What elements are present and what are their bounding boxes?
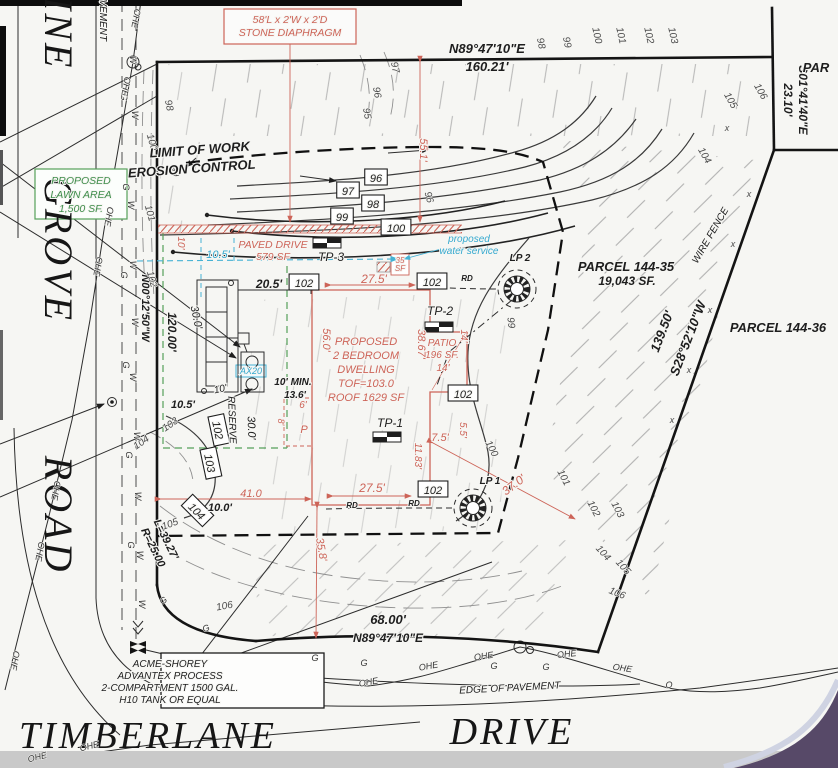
utility-label-39: x <box>707 305 713 315</box>
contour-label-1: 97 <box>337 182 360 198</box>
svg-text:PROPOSED: PROPOSED <box>51 175 111 187</box>
svg-text:RESERVE: RESERVE <box>225 396 238 444</box>
utility-label-42: x <box>724 123 730 133</box>
street-name-drive: DRIVE <box>449 711 575 753</box>
svg-text:160.21': 160.21' <box>466 59 510 74</box>
roof-drain-label: RD <box>461 274 473 283</box>
svg-text:RD: RD <box>346 501 358 510</box>
svg-text:SF: SF <box>395 264 406 273</box>
svg-text:579 SF: 579 SF <box>256 251 290 263</box>
svg-text:PARCEL 144-36: PARCEL 144-36 <box>730 320 827 335</box>
lawn-note-line-1: PROPOSED <box>51 175 111 187</box>
svg-text:PAVED DRIVE: PAVED DRIVE <box>238 239 308 251</box>
leach-pool-1-label: LP 1 <box>480 476 501 487</box>
stone-diaphragm-line <box>158 225 462 233</box>
patio-dim-2: 14' <box>458 329 469 343</box>
septic-note-line-4: H10 TANK OR EQUAL <box>119 695 221 706</box>
svg-text:x: x <box>730 239 736 249</box>
site-plan-page: Scanned engineering site plan: proposed … <box>0 0 838 768</box>
svg-text:AX20: AX20 <box>239 366 262 376</box>
utility-label-30: O <box>665 680 672 690</box>
distance-south: 68.00' <box>370 612 407 627</box>
svg-text:7.5': 7.5' <box>431 432 449 444</box>
distance-east: 23.10' <box>781 83 795 118</box>
svg-text:N89°47'10"E: N89°47'10"E <box>353 631 424 645</box>
svg-text:68.00': 68.00' <box>370 612 407 627</box>
svg-text:120.00': 120.00' <box>165 312 179 353</box>
svg-text:TOF=103.0: TOF=103.0 <box>338 378 395 390</box>
svg-text:10.5': 10.5' <box>171 399 195 411</box>
svg-text:G: G <box>490 661 497 671</box>
svg-text:LP 2: LP 2 <box>510 253 531 264</box>
utility-label-35: G <box>542 662 549 672</box>
stone-diaphragm-note-line-2: STONE DIAPHRAGM <box>239 27 342 39</box>
svg-text:10' MIN.: 10' MIN. <box>274 377 311 388</box>
septic-note-line-3: 2-COMPARTMENT 1500 GAL. <box>101 683 239 694</box>
contour-label-6: 102 <box>417 273 447 289</box>
svg-text:x: x <box>669 415 675 425</box>
contour-label-7: 102 <box>448 385 478 401</box>
test-pit-2-label: TP-2 <box>427 304 453 318</box>
leach-pool-2-label: LP 2 <box>510 253 531 264</box>
svg-text:2 BEDROOM: 2 BEDROOM <box>332 350 400 362</box>
svg-text:19,043 SF.: 19,043 SF. <box>598 274 655 288</box>
dimension-label-9: 41.0 <box>240 488 262 500</box>
dimension-label-1: 27.5' <box>360 272 387 286</box>
patio-dim-1: 14' <box>436 363 450 374</box>
svg-text:11.83': 11.83' <box>412 443 423 470</box>
dwelling-note-line-3: DWELLING <box>337 364 395 376</box>
dimension-label-22: 30.0' <box>245 416 258 441</box>
svg-text:P: P <box>300 424 308 436</box>
street-name-timberlane: TIMBERLANE <box>19 715 277 757</box>
svg-text:proposed: proposed <box>447 234 490 245</box>
walk-symbol <box>377 262 390 272</box>
dimension-label-7: 11.83' <box>412 443 423 470</box>
distance-west: 120.00' <box>165 312 179 353</box>
parcel-144-35: PARCEL 144-35 <box>578 259 675 274</box>
svg-text:PAR: PAR <box>803 60 830 75</box>
svg-text:PARCEL 144-35: PARCEL 144-35 <box>578 259 675 274</box>
utility-label-14: G <box>124 451 134 458</box>
svg-text:H10 TANK OR EQUAL: H10 TANK OR EQUAL <box>119 695 221 706</box>
svg-text:10.5': 10.5' <box>206 249 230 261</box>
svg-text:55.1': 55.1' <box>417 138 429 162</box>
site-plan-drawing: PINEGROVEROADTIMBERLANEDRIVEN89°47'10"E1… <box>0 0 838 768</box>
svg-text:OF PAVEMENT: OF PAVEMENT <box>97 0 108 42</box>
street-name-pine: PINE <box>36 0 81 70</box>
contour-label-4: 100 <box>381 219 411 235</box>
utility-label-40: x <box>686 365 692 375</box>
svg-text:TP-2: TP-2 <box>427 304 453 318</box>
svg-text:x: x <box>707 305 713 315</box>
svg-text:98: 98 <box>367 199 380 211</box>
water-service-label-line-2: water service <box>440 246 499 257</box>
dimension-label-2: 27.5' <box>358 481 385 495</box>
svg-text:DWELLING: DWELLING <box>337 364 395 376</box>
svg-text:2-COMPARTMENT 1500 GAL.: 2-COMPARTMENT 1500 GAL. <box>101 683 239 694</box>
svg-text:38.67': 38.67' <box>415 329 427 360</box>
test-pit-3-symbol <box>313 238 341 248</box>
utility-label-32: G <box>311 653 318 663</box>
svg-text:99: 99 <box>504 317 516 330</box>
svg-text:O: O <box>665 680 672 690</box>
svg-text:102: 102 <box>295 278 313 290</box>
svg-text:OHE: OHE <box>556 648 577 660</box>
utility-label-33: G <box>360 658 367 668</box>
dwelling-note-line-5: ROOF 1629 SF <box>328 392 405 404</box>
svg-text:x: x <box>724 123 730 133</box>
svg-text:97: 97 <box>342 186 355 198</box>
roof-drain-label: RD <box>408 499 420 508</box>
svg-text:x: x <box>686 365 692 375</box>
svg-text:10': 10' <box>175 236 186 250</box>
svg-text:LP 1: LP 1 <box>480 476 501 487</box>
dimension-label-6: 5.5' <box>457 422 468 439</box>
utility-label-28: OHE <box>556 648 577 660</box>
svg-text:20.5': 20.5' <box>255 277 283 291</box>
svg-text:water service: water service <box>440 246 499 257</box>
svg-text:PINE: PINE <box>36 0 81 70</box>
svg-text:14': 14' <box>458 329 469 343</box>
dimension-label-18: 10.5' <box>171 399 195 411</box>
svg-text:58'L x 2'W x 2'D: 58'L x 2'W x 2'D <box>253 14 328 26</box>
svg-text:5.5': 5.5' <box>457 422 468 439</box>
utility-label-11: G <box>121 183 131 190</box>
dwelling-note-line-4: TOF=103.0 <box>338 378 395 390</box>
utility-label-34: G <box>490 661 497 671</box>
svg-text:10.0': 10.0' <box>208 502 232 514</box>
dimension-label-17: 13.6' <box>284 390 306 401</box>
test-pit-2-symbol <box>425 322 453 332</box>
contour-label-5: 102 <box>289 274 319 290</box>
svg-text:TIMBERLANE: TIMBERLANE <box>19 715 277 757</box>
svg-text:G: G <box>311 653 318 663</box>
svg-text:14': 14' <box>436 363 450 374</box>
svg-text:PATIO: PATIO <box>428 338 457 349</box>
water-service-label-line-1: proposed <box>447 234 490 245</box>
dimension-label-15: 20.5' <box>255 277 283 291</box>
contour-label-3: 99 <box>331 208 354 224</box>
svg-text:41.0: 41.0 <box>240 488 262 500</box>
svg-text:96: 96 <box>370 173 383 185</box>
reserve-area-label: RESERVE <box>225 396 238 444</box>
svg-text:G: G <box>542 662 549 672</box>
svg-text:G: G <box>126 541 136 548</box>
svg-text:G: G <box>121 361 131 368</box>
lawn-note-line-3: 1,500 SF. <box>59 203 103 215</box>
dwelling-note-line-2: 2 BEDROOM <box>332 350 400 362</box>
parcel-area: 19,043 SF. <box>598 274 655 288</box>
edge-of-pavement-left-label: OF PAVEMENT <box>97 0 108 42</box>
svg-text:TP-1: TP-1 <box>377 416 403 430</box>
stone-diaphragm-note-line-1: 58'L x 2'W x 2'D <box>253 14 328 26</box>
svg-text:99: 99 <box>336 212 348 224</box>
svg-text:102: 102 <box>454 389 472 401</box>
test-pit-1-symbol <box>373 432 401 442</box>
dimension-label-3: 56.0' <box>320 328 332 352</box>
svg-text:102: 102 <box>424 485 442 497</box>
svg-text:STONE DIAPHRAGM: STONE DIAPHRAGM <box>239 27 342 39</box>
septic-note-line-1: ACME-SHOREY <box>132 659 209 670</box>
svg-text:PROPOSED: PROPOSED <box>335 336 397 348</box>
contour-label-2: 98 <box>362 195 385 211</box>
patio-label: PATIO <box>428 338 457 349</box>
lawn-note-line-2: LAWN AREA <box>50 189 111 201</box>
dwelling-note-line-1: PROPOSED <box>335 336 397 348</box>
svg-text:RD: RD <box>461 274 473 283</box>
svg-text:DRIVE: DRIVE <box>449 711 575 753</box>
dimension-label-11: 6' <box>299 400 308 411</box>
bearing-north: N89°47'10"E <box>449 41 525 56</box>
utility-label-15: G <box>126 541 136 548</box>
utility-label-12: G <box>119 271 129 278</box>
svg-text:G: G <box>119 271 129 278</box>
distance-north: 160.21' <box>466 59 510 74</box>
contour-label-34: 99 <box>504 317 516 330</box>
svg-text:6': 6' <box>299 400 308 411</box>
svg-text:102: 102 <box>423 277 441 289</box>
svg-text:G: G <box>121 183 131 190</box>
svg-text:27.5': 27.5' <box>360 272 387 286</box>
advantex-unit-label: AX20 <box>239 366 262 376</box>
paved-drive-label: PAVED DRIVE <box>238 239 308 251</box>
parcel-label-cutoff: PAR <box>803 60 830 75</box>
svg-text:G: G <box>124 451 134 458</box>
svg-text:x: x <box>746 189 752 199</box>
svg-text:8': 8' <box>276 419 286 426</box>
roof-drain-label: RD <box>346 501 358 510</box>
utility-label-41: x <box>669 415 675 425</box>
svg-text:ACME-SHOREY: ACME-SHOREY <box>132 659 209 670</box>
svg-text:N89°47'10"E: N89°47'10"E <box>449 41 525 56</box>
contour-label-0: 96 <box>365 169 388 185</box>
svg-text:13.6': 13.6' <box>284 390 306 401</box>
walk-area-line-2: SF <box>395 264 406 273</box>
svg-text:27.5': 27.5' <box>358 481 385 495</box>
utility-label-37: x <box>746 189 752 199</box>
bearing-east: S01°41'40"E <box>796 65 810 135</box>
dimension-label-13: 8' <box>276 419 286 426</box>
svg-text:TP-3: TP-3 <box>318 250 344 264</box>
contour-label-8: 102 <box>418 481 448 497</box>
svg-text:56.0': 56.0' <box>320 328 332 352</box>
dimension-label-4: 38.67' <box>415 329 427 360</box>
parcel-144-36: PARCEL 144-36 <box>730 320 827 335</box>
svg-text:ADVANTEX PROCESS: ADVANTEX PROCESS <box>116 671 222 682</box>
bearing-south: N89°47'10"E <box>353 631 424 645</box>
svg-text:LAWN AREA: LAWN AREA <box>50 189 111 201</box>
utility-label-38: x <box>730 239 736 249</box>
svg-text:196 SF.: 196 SF. <box>425 350 459 361</box>
svg-text:S01°41'40"E: S01°41'40"E <box>796 65 810 135</box>
test-pit-1-label: TP-1 <box>377 416 403 430</box>
svg-text:30.0': 30.0' <box>245 416 258 441</box>
svg-text:23.10': 23.10' <box>781 83 795 118</box>
svg-text:RD: RD <box>408 499 420 508</box>
test-pit-3-label: TP-3 <box>318 250 344 264</box>
svg-text:1,500 SF.: 1,500 SF. <box>59 203 103 215</box>
patio-area: 196 SF. <box>425 350 459 361</box>
svg-text:100: 100 <box>387 223 406 235</box>
dimension-label-12: P <box>300 424 308 436</box>
dimension-label-16: 10' MIN. <box>274 377 311 388</box>
dimension-label-14: 10.5' <box>206 249 230 261</box>
dimension-label-5: 7.5' <box>431 432 449 444</box>
septic-note-line-2: ADVANTEX PROCESS <box>116 671 222 682</box>
dimension-label-0: 10' <box>175 236 186 250</box>
utility-label-13: G <box>121 361 131 368</box>
dim-55-1: 55.1' <box>417 138 429 162</box>
svg-text:G: G <box>360 658 367 668</box>
svg-text:ROOF 1629 SF: ROOF 1629 SF <box>328 392 405 404</box>
dimension-label-19: 10.0' <box>208 502 232 514</box>
paved-drive-area: 579 SF <box>256 251 290 263</box>
